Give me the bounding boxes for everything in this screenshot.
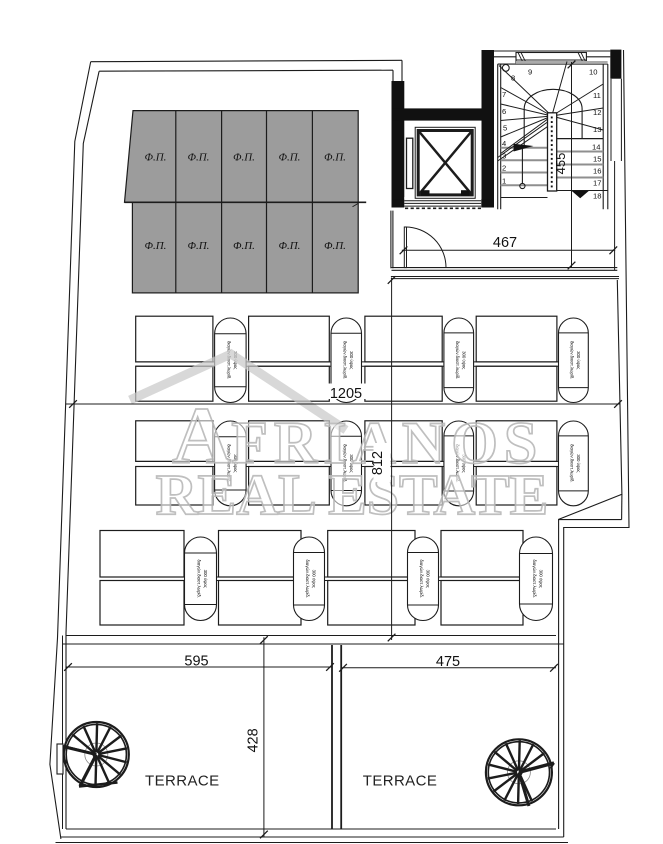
svg-text:διαγών.διαστ.λωρίδ.: διαγών.διαστ.λωρίδ.: [532, 560, 537, 598]
svg-text:18: 18: [593, 192, 601, 201]
svg-text:TERRACE: TERRACE: [363, 773, 437, 790]
svg-text:428: 428: [246, 728, 262, 752]
svg-text:διαγών.διαστ.λωρίδ.: διαγών.διαστ.λωρίδ.: [342, 341, 347, 379]
svg-text:455: 455: [553, 153, 568, 175]
svg-text:διαγών.διαστ.λωρίδ.: διαγών.διαστ.λωρίδ.: [569, 341, 574, 379]
svg-text:595: 595: [184, 654, 208, 670]
svg-text:2: 2: [502, 164, 506, 173]
svg-text:διαγών.διαστ.λωρίδ.: διαγών.διαστ.λωρίδ.: [419, 560, 424, 598]
svg-text:300 ύψος: 300 ύψος: [349, 351, 354, 369]
svg-text:διαγών.διαστ.λωρίδ.: διαγών.διαστ.λωρίδ.: [569, 444, 574, 482]
svg-text:17: 17: [593, 179, 601, 188]
svg-text:Φ.Π.: Φ.Π.: [324, 152, 346, 164]
svg-text:16: 16: [593, 167, 601, 176]
svg-text:REAL ESTATE: REAL ESTATE: [156, 462, 549, 527]
svg-text:467: 467: [493, 235, 517, 251]
svg-text:διαγών.διαστ.λωρίδ.: διαγών.διαστ.λωρίδ.: [455, 341, 460, 379]
svg-text:13: 13: [593, 125, 601, 134]
svg-text:Φ.Π.: Φ.Π.: [188, 152, 210, 164]
svg-text:3: 3: [502, 152, 506, 161]
svg-text:300 ύψος: 300 ύψος: [426, 570, 431, 588]
svg-text:10: 10: [589, 68, 597, 77]
svg-text:300 ύψος: 300 ύψος: [203, 570, 208, 588]
svg-text:Φ.Π.: Φ.Π.: [233, 152, 255, 164]
svg-text:διαγών.διαστ.λωρίδ.: διαγών.διαστ.λωρίδ.: [197, 560, 202, 598]
svg-text:475: 475: [436, 654, 460, 670]
svg-text:1: 1: [502, 177, 506, 186]
svg-text:8: 8: [511, 74, 515, 83]
svg-text:300 ύψος: 300 ύψος: [461, 351, 466, 369]
svg-text:TERRACE: TERRACE: [145, 773, 219, 790]
svg-text:300 ύψος: 300 ύψος: [576, 351, 581, 369]
svg-text:Φ.Π.: Φ.Π.: [279, 240, 301, 252]
svg-text:812: 812: [370, 451, 386, 475]
svg-text:Φ.Π.: Φ.Π.: [279, 152, 301, 164]
svg-text:6: 6: [502, 107, 506, 116]
svg-text:300 ύψος: 300 ύψος: [312, 570, 317, 588]
svg-text:11: 11: [593, 91, 601, 100]
svg-text:Φ.Π.: Φ.Π.: [188, 240, 210, 252]
svg-text:15: 15: [593, 155, 601, 164]
svg-text:9: 9: [528, 68, 532, 77]
svg-text:Φ.Π.: Φ.Π.: [145, 152, 167, 164]
svg-text:Φ.Π.: Φ.Π.: [233, 240, 255, 252]
svg-text:1205: 1205: [330, 386, 362, 402]
svg-text:14: 14: [592, 143, 600, 152]
svg-text:12: 12: [593, 108, 601, 117]
svg-text:Φ.Π.: Φ.Π.: [145, 240, 167, 252]
svg-text:Φ.Π.: Φ.Π.: [324, 240, 346, 252]
svg-text:300 ύψος: 300 ύψος: [576, 454, 581, 472]
svg-text:διαγών.διαστ.λωρίδ.: διαγών.διαστ.λωρίδ.: [305, 560, 310, 598]
svg-text:5: 5: [503, 124, 507, 133]
svg-text:4: 4: [502, 139, 506, 148]
svg-text:7: 7: [502, 90, 506, 99]
svg-text:300 ύψος: 300 ύψος: [539, 570, 544, 588]
